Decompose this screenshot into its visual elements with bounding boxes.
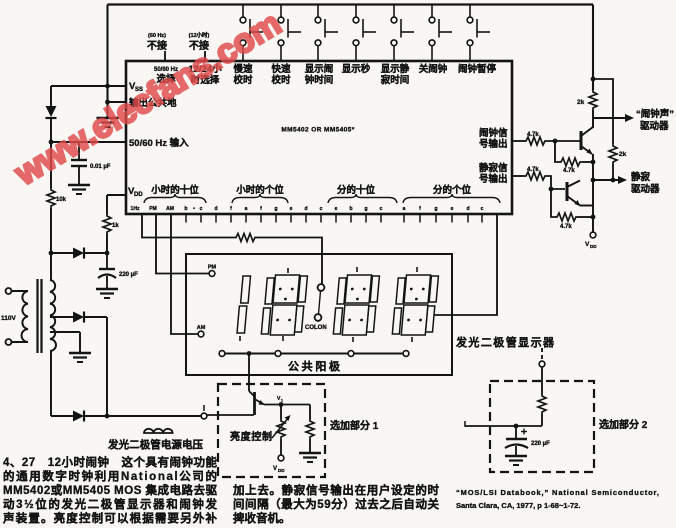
svg-text:10k: 10k: [56, 197, 67, 203]
svg-text:不接: 不接: [147, 39, 167, 52]
svg-text:2k: 2k: [619, 151, 627, 158]
svg-text:钟时间: 钟时间: [305, 74, 334, 86]
svg-text:220 µF: 220 µF: [531, 441, 550, 447]
svg-text:闹钟暂停: 闹钟暂停: [458, 63, 497, 75]
svg-text:驱动器: 驱动器: [631, 184, 660, 195]
svg-text:DD: DD: [134, 192, 143, 198]
svg-text:(12小时): (12小时): [189, 31, 210, 39]
svg-text:显示静: 显示静: [381, 63, 410, 75]
svg-text:V: V: [273, 466, 277, 472]
svg-text:1k: 1k: [112, 223, 119, 229]
svg-text:选加部分 2: 选加部分 2: [599, 418, 648, 431]
svg-text:4、27 12小时闹钟 这个具有闹钟功能: 4、27 12小时闹钟 这个具有闹钟功能: [3, 455, 218, 469]
svg-text:g: g: [434, 206, 437, 212]
svg-text:MM5402或MM5405 MOS 集成电路去驱: MM5402或MM5405 MOS 集成电路去驱: [3, 483, 218, 497]
svg-text:•: •: [193, 206, 195, 212]
svg-text:DD: DD: [278, 468, 285, 473]
svg-text:g: g: [274, 206, 277, 212]
svg-text:c: c: [380, 206, 383, 212]
svg-text:g: g: [364, 206, 367, 212]
svg-text:亮度控制: 亮度控制: [230, 430, 272, 443]
svg-text:加上去。静寂信号输出在用户设定的时: 加上去。静寂信号输出在用户设定的时: [232, 483, 440, 497]
svg-text:e: e: [335, 206, 338, 212]
svg-text:寂时间: 寂时间: [381, 74, 410, 86]
svg-text:d: d: [466, 206, 469, 212]
svg-text:220 µF: 220 µF: [119, 272, 138, 278]
svg-text:4.7k: 4.7k: [527, 132, 539, 138]
svg-text:4.7k: 4.7k: [560, 224, 572, 230]
svg-text:静寂: 静寂: [631, 171, 651, 183]
svg-text:号输出: 号输出: [479, 138, 508, 150]
svg-text:d: d: [304, 206, 307, 212]
svg-text:公共阳极: 公共阳极: [288, 359, 341, 373]
svg-text:4.7k: 4.7k: [527, 167, 539, 173]
svg-text:闹钟信: 闹钟信: [479, 127, 508, 139]
svg-text:c: c: [200, 206, 203, 212]
svg-text:c: c: [320, 206, 323, 212]
svg-text:4.7k: 4.7k: [563, 168, 575, 174]
svg-text:号输出: 号输出: [479, 173, 508, 185]
svg-text:e: e: [451, 206, 454, 212]
svg-text:“MOS/LSI Databook,” National S: “MOS/LSI Databook,” National Semiconduct…: [456, 488, 659, 497]
svg-text:关闹钟: 关闹钟: [419, 63, 448, 75]
svg-text:a: a: [403, 206, 406, 212]
svg-text:b: b: [184, 206, 187, 212]
svg-text:捭收音机。: 捭收音机。: [233, 511, 291, 525]
svg-text:1: 1: [281, 399, 283, 403]
svg-text:快速: 快速: [271, 63, 291, 75]
svg-text:b: b: [349, 206, 352, 212]
svg-text:显示闹: 显示闹: [305, 63, 334, 75]
svg-text:DD: DD: [590, 244, 597, 249]
svg-text:显示秒: 显示秒: [342, 63, 371, 75]
svg-text:COLON: COLON: [305, 325, 327, 331]
svg-text:选加部分 1: 选加部分 1: [330, 419, 379, 432]
svg-text:静寂信: 静寂信: [479, 162, 508, 174]
svg-text:的通用数字时钟利用National公司的: 的通用数字时钟利用National公司的: [3, 469, 217, 483]
svg-text:(60 Hz): (60 Hz): [148, 33, 166, 39]
svg-text:“闹钟声”: “闹钟声”: [636, 108, 674, 120]
svg-text:MM5402 OR MM5405*: MM5402 OR MM5405*: [281, 127, 354, 134]
svg-text:Santa Clara, CA, 1977, p 1-68~: Santa Clara, CA, 1977, p 1-68~1-72.: [456, 501, 580, 510]
svg-text:AM: AM: [197, 325, 206, 331]
svg-text:声装置。亮度控制可以根据需要另外补: 声装置。亮度控制可以根据需要另外补: [2, 511, 218, 525]
svg-text:校时: 校时: [233, 74, 253, 86]
svg-text:发光二极管电源电压: 发光二极管电源电压: [107, 438, 204, 451]
svg-text:50/60 Hz 输入: 50/60 Hz 输入: [129, 137, 189, 149]
svg-text:110V: 110V: [1, 315, 16, 322]
svg-text:a: a: [245, 206, 248, 212]
svg-text:动3½位的发光二极管显示器和闹钟发: 动3½位的发光二极管显示器和闹钟发: [3, 497, 218, 511]
svg-text:PM: PM: [149, 206, 157, 212]
svg-text:c: c: [481, 206, 484, 212]
svg-text:间间隔（最大为59分）过去之后自动关: 间间隔（最大为59分）过去之后自动关: [233, 497, 440, 511]
svg-text:e: e: [290, 206, 293, 212]
svg-text:0.01 µF: 0.01 µF: [90, 164, 111, 170]
svg-text:2k: 2k: [577, 99, 585, 106]
svg-text:发光二极管显示器: 发光二极管显示器: [455, 335, 555, 349]
svg-text:d: d: [214, 206, 217, 212]
svg-text:1Hz: 1Hz: [131, 206, 140, 212]
svg-text:AM: AM: [166, 206, 174, 212]
svg-text:驱动器: 驱动器: [640, 121, 669, 132]
svg-text:校时: 校时: [271, 74, 291, 86]
svg-text:PM: PM: [208, 265, 217, 271]
